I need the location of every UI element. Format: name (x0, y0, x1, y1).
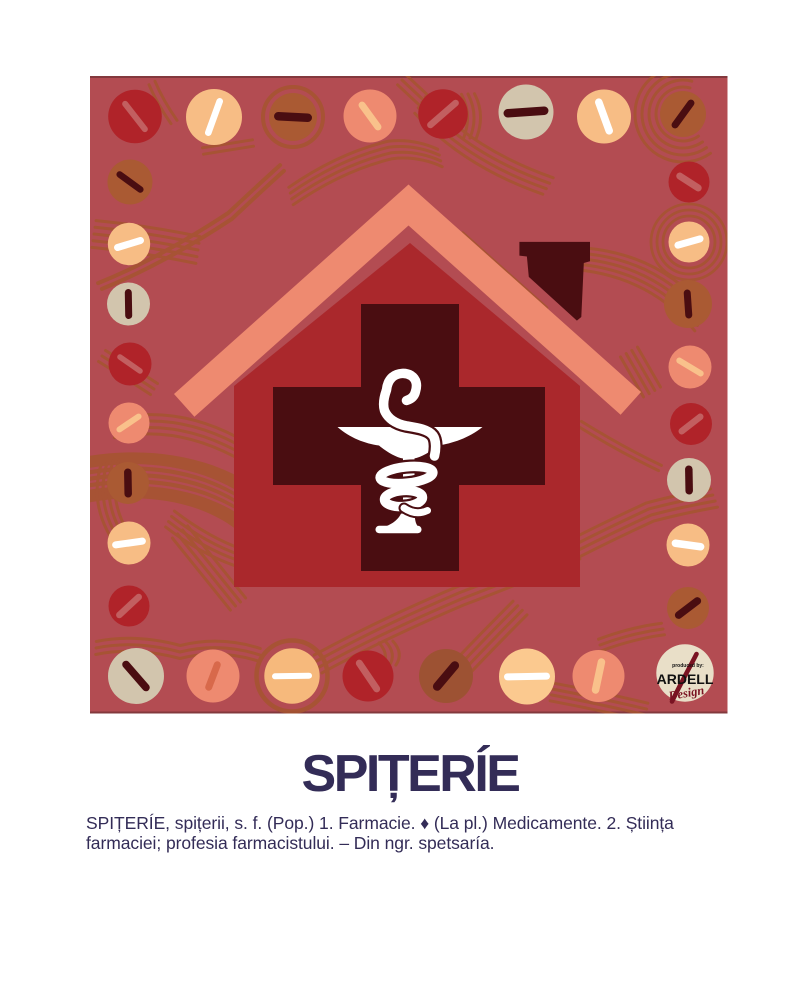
svg-text:produced by:: produced by: (672, 663, 704, 669)
svg-text:ARDELL: ARDELL (657, 671, 714, 687)
